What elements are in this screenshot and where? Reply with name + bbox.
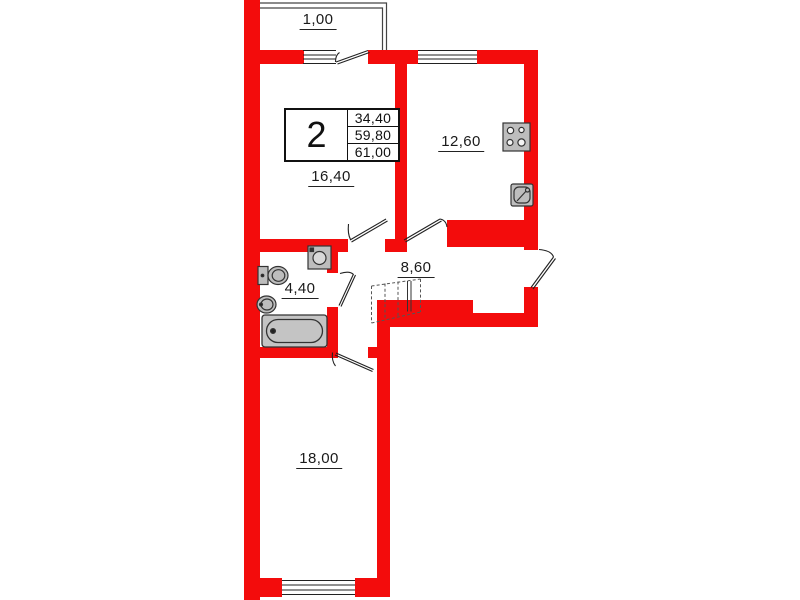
window-kitchen-icon: [418, 50, 477, 64]
reduced-area-value: 59,80: [348, 126, 398, 143]
bedroom-area-label: 18,00: [296, 451, 342, 469]
wall-top-b: [368, 50, 418, 64]
bathtub-icon: [262, 315, 327, 347]
hallway-area-label: 8,60: [398, 260, 435, 278]
balcony-door-icon: [336, 51, 370, 65]
wall-top-a: [244, 50, 304, 64]
wall-bath-bottom: [258, 347, 332, 358]
bathroom-door-icon: [339, 272, 356, 306]
wall-entrance-block: [524, 287, 538, 327]
wall-hall-bottom-thick: [377, 300, 473, 327]
entrance-door-icon: [531, 250, 556, 290]
living-room-area-label: 16,40: [308, 169, 354, 187]
apartment-summary-table: 2 34,40 59,80 61,00: [284, 108, 400, 162]
kitchen-door-icon: [404, 219, 447, 242]
balcony-area-label: 1,00: [300, 12, 337, 30]
bathroom-area-label: 4,40: [282, 281, 319, 299]
wall-bottom-left: [244, 578, 282, 597]
window-bedroom-icon: [282, 580, 355, 595]
rooms-count: 2: [286, 110, 348, 160]
wall-left: [244, 0, 260, 600]
wall-between-doors: [385, 239, 407, 252]
wall-bedroom-right: [377, 327, 390, 597]
wall-kitchen-bottom: [447, 220, 538, 247]
living-room-door-icon: [348, 219, 387, 242]
window-living-icon: [303, 50, 336, 64]
wall-hall-bottom-thin: [473, 313, 524, 327]
total-area-value: 61,00: [348, 143, 398, 160]
kitchen-area-label: 12,60: [438, 134, 484, 152]
wall-bottom-right: [355, 578, 390, 597]
wall-bath-right-top: [327, 248, 338, 273]
floor-plan: 1,00 16,40 12,60 8,60 4,40 18,00 2 34,40…: [0, 0, 800, 600]
living-area-value: 34,40: [348, 110, 398, 126]
